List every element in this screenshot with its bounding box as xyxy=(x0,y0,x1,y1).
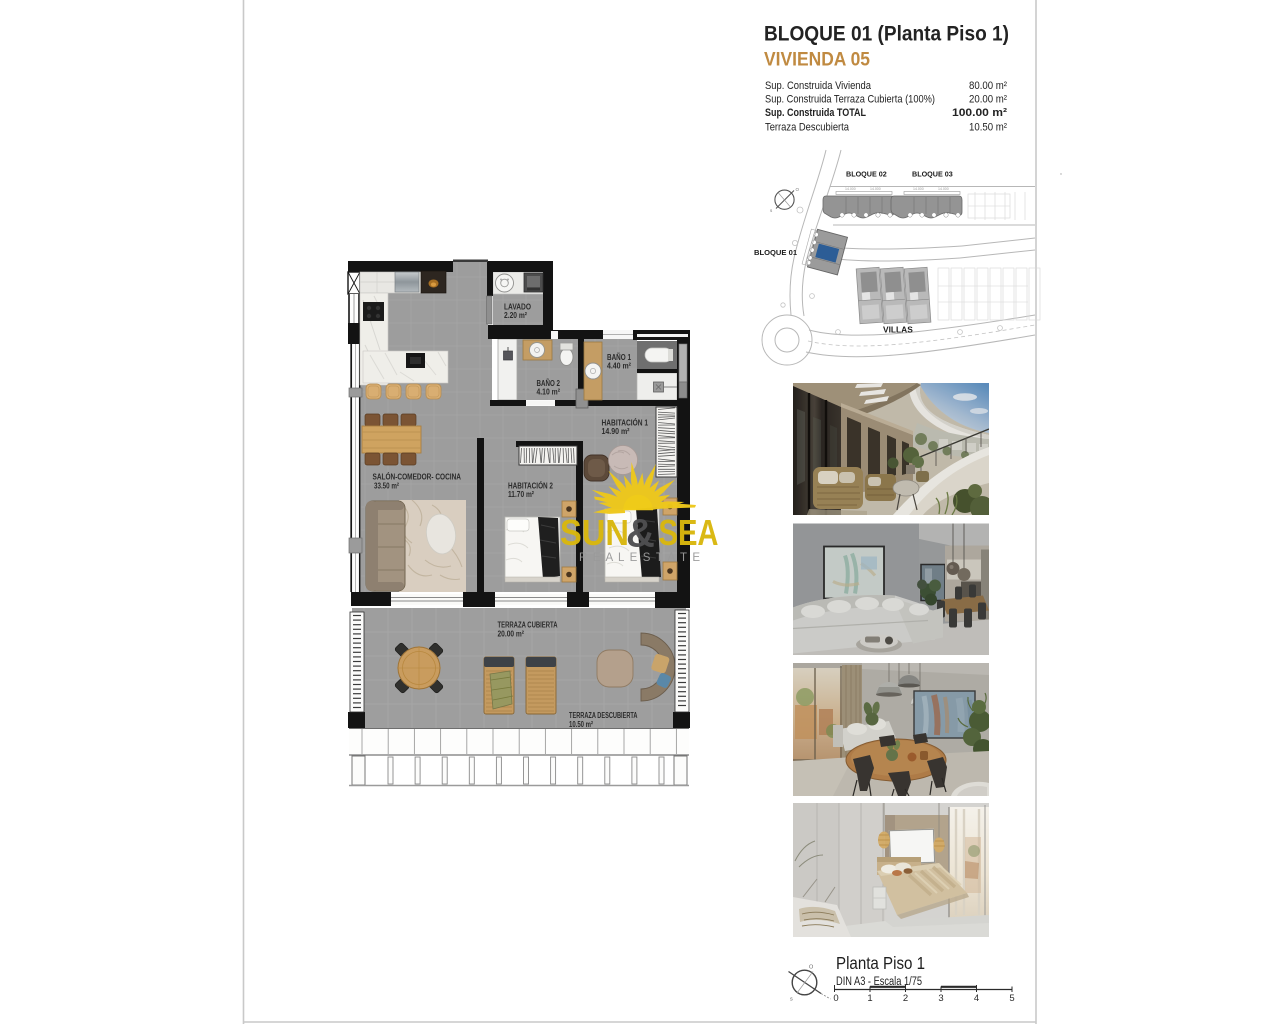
svg-text:14.000: 14.000 xyxy=(913,187,924,191)
svg-text:2: 2 xyxy=(903,993,908,1004)
svg-text:SUN: SUN xyxy=(560,512,629,553)
svg-text:BLOQUE 02: BLOQUE 02 xyxy=(846,170,887,179)
svg-text:Sup. Construida TOTAL: Sup. Construida TOTAL xyxy=(765,107,866,119)
svg-text:100.00 m²: 100.00 m² xyxy=(952,107,1007,119)
svg-text:Sup. Construida Vivienda: Sup. Construida Vivienda xyxy=(765,80,872,92)
svg-text:5: 5 xyxy=(1009,993,1014,1004)
svg-text:Terraza Descubierta: Terraza Descubierta xyxy=(765,122,850,134)
svg-text:VIVIENDA 05: VIVIENDA 05 xyxy=(764,50,870,71)
svg-text:Planta Piso 1: Planta Piso 1 xyxy=(836,953,925,973)
svg-text:11.70 m²: 11.70 m² xyxy=(508,489,534,499)
svg-text:14.000: 14.000 xyxy=(845,187,856,191)
svg-text:4.40 m²: 4.40 m² xyxy=(607,361,631,371)
svg-text:s: s xyxy=(790,997,793,1003)
svg-text:14.000: 14.000 xyxy=(938,187,949,191)
svg-text:4: 4 xyxy=(974,993,979,1004)
svg-text:20.00 m²: 20.00 m² xyxy=(498,629,525,639)
svg-text:33.50 m²: 33.50 m² xyxy=(374,481,399,491)
svg-text:BLOQUE 03: BLOQUE 03 xyxy=(912,170,953,179)
svg-text:x: x xyxy=(1060,171,1062,176)
svg-text:O: O xyxy=(809,965,814,971)
svg-text:14.000: 14.000 xyxy=(870,187,881,191)
svg-text:3: 3 xyxy=(938,993,943,1004)
svg-text:1: 1 xyxy=(867,993,872,1004)
svg-text:4.10 m²: 4.10 m² xyxy=(537,387,561,397)
svg-text:&: & xyxy=(626,512,655,556)
svg-text:R E A L E S T A T E: R E A L E S T A T E xyxy=(579,552,700,564)
svg-text:10.50 m²: 10.50 m² xyxy=(969,122,1007,134)
svg-text:VILLAS: VILLAS xyxy=(883,325,913,335)
svg-text:80.00 m²: 80.00 m² xyxy=(969,80,1007,92)
svg-text:2.20 m²: 2.20 m² xyxy=(504,310,527,320)
svg-text:20.00 m²: 20.00 m² xyxy=(969,94,1007,106)
svg-text:10.50 m²: 10.50 m² xyxy=(569,719,593,729)
svg-text:14.90 m²: 14.90 m² xyxy=(602,426,630,436)
svg-text:Sup. Construida Terraza Cubier: Sup. Construida Terraza Cubierta (100%) xyxy=(765,94,935,106)
svg-text:0: 0 xyxy=(833,993,838,1004)
svg-text:BLOQUE 01: BLOQUE 01 xyxy=(754,248,798,257)
svg-text:SEA: SEA xyxy=(659,512,719,553)
svg-text:O: O xyxy=(796,187,800,192)
svg-text:BLOQUE 01 (Planta Piso 1): BLOQUE 01 (Planta Piso 1) xyxy=(764,22,1009,46)
